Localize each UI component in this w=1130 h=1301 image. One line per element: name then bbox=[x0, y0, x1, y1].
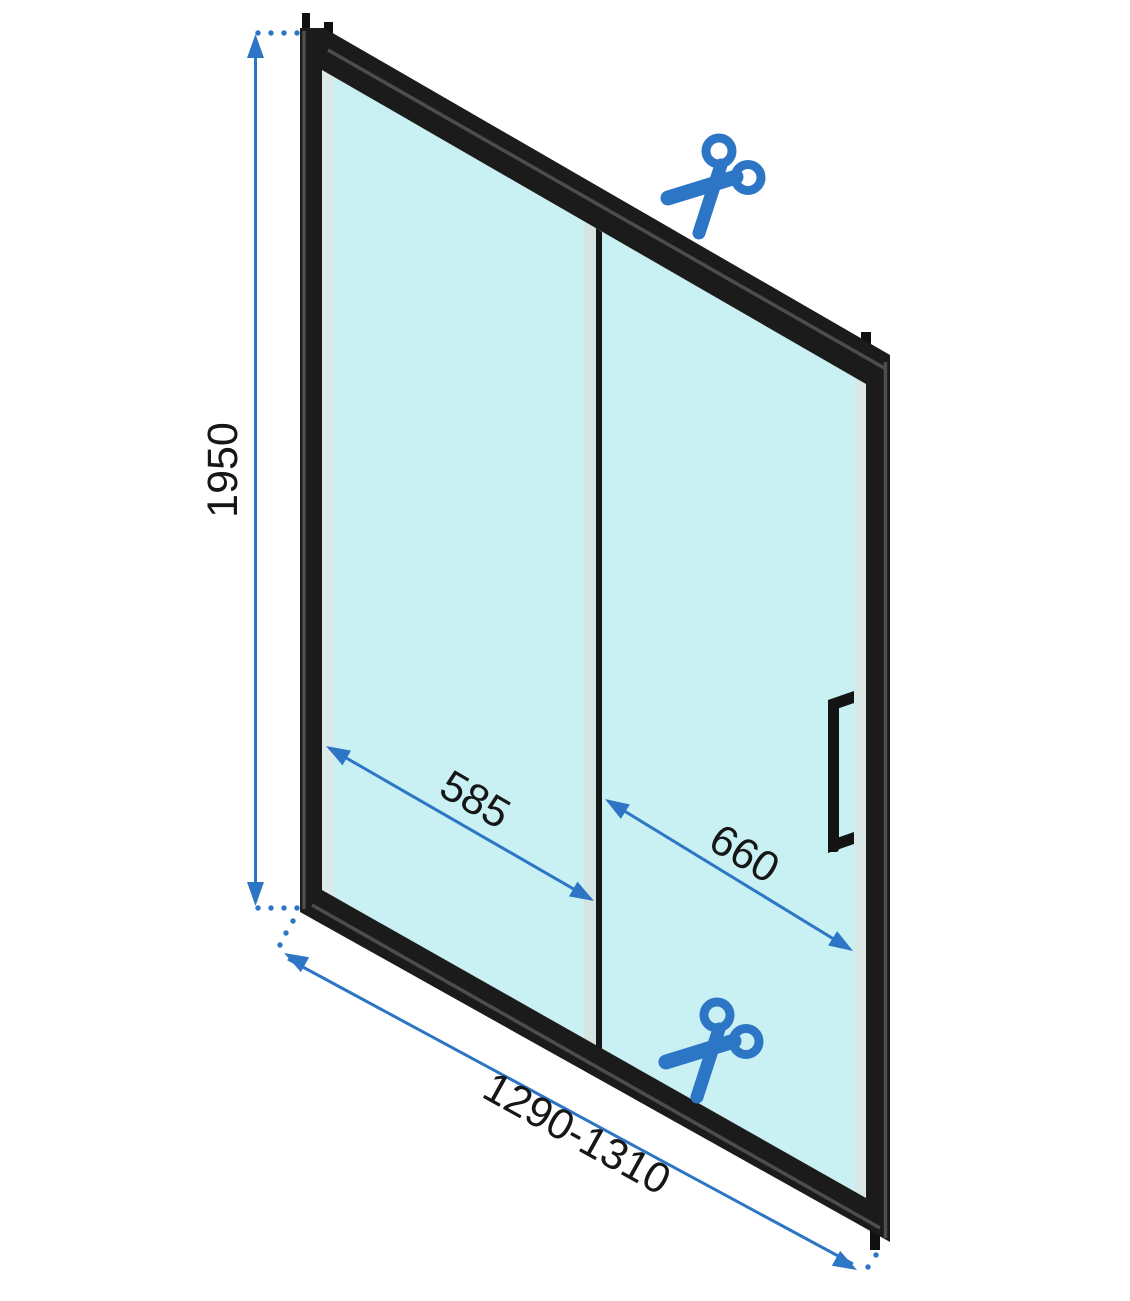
panel-divider bbox=[596, 228, 602, 1051]
extension-dots-top bbox=[255, 30, 299, 35]
glass-edge-left bbox=[322, 70, 334, 897]
extension-dots-diagonal-left bbox=[277, 918, 295, 947]
scissors-icon bbox=[668, 138, 761, 233]
diagram-canvas: 1950 1290-1310 585 660 bbox=[0, 0, 1130, 1301]
arrowhead-down bbox=[247, 882, 264, 906]
extension-dots-bottom bbox=[255, 905, 299, 910]
dimension-height: 1950 bbox=[199, 30, 300, 910]
glass-edge-right bbox=[855, 378, 866, 1198]
glass-edge-center bbox=[584, 222, 596, 1046]
arrowhead-up bbox=[247, 34, 264, 58]
shower-door-dimension-diagram: 1950 1290-1310 585 660 bbox=[0, 0, 1130, 1301]
height-label: 1950 bbox=[199, 422, 247, 518]
handle-bar bbox=[828, 700, 839, 852]
extension-dots-diagonal-right bbox=[865, 1252, 878, 1269]
